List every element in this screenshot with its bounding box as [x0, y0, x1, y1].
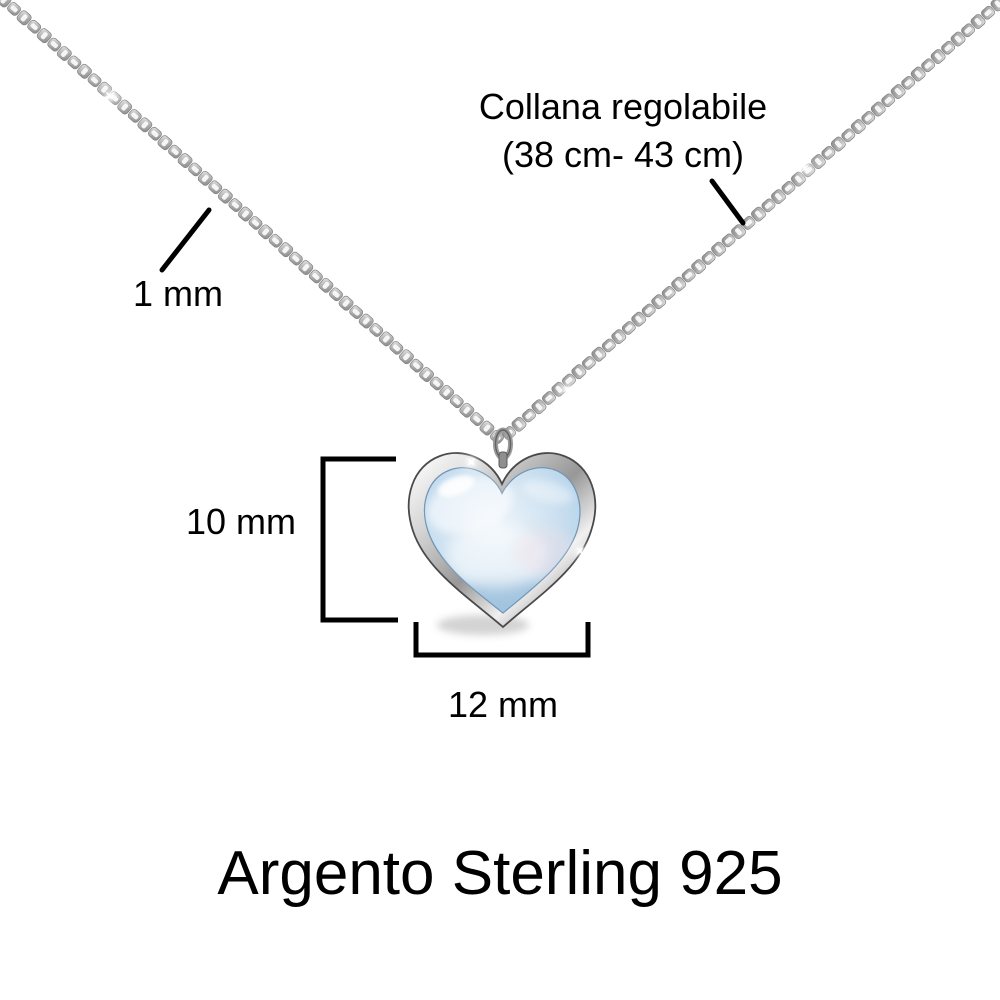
adjustable-length-text: Collana regolabile — [423, 83, 823, 131]
chain-thickness-pointer-line — [162, 210, 209, 270]
adjustable-length-range: (38 cm- 43 cm) — [423, 131, 823, 179]
pendant-height-bracket — [323, 459, 398, 620]
pendant-height-label: 10 mm — [186, 501, 296, 543]
heart-pendant — [409, 430, 595, 635]
material-label: Argento Sterling 925 — [0, 838, 1000, 909]
adjustable-length-pointer-line — [712, 181, 743, 223]
sparkle-icon — [423, 588, 439, 604]
adjustable-length-label: Collana regolabile (38 cm- 43 cm) — [423, 83, 823, 179]
pendant-shadow — [437, 615, 529, 635]
chain-thickness-label: 1 mm — [133, 273, 223, 315]
chain-right — [501, 0, 1000, 441]
product-measurement-image: Collana regolabile (38 cm- 43 cm) 1 mm 1… — [0, 0, 1000, 1000]
pendant-width-label: 12 mm — [403, 684, 603, 726]
chain-left — [0, 0, 505, 445]
